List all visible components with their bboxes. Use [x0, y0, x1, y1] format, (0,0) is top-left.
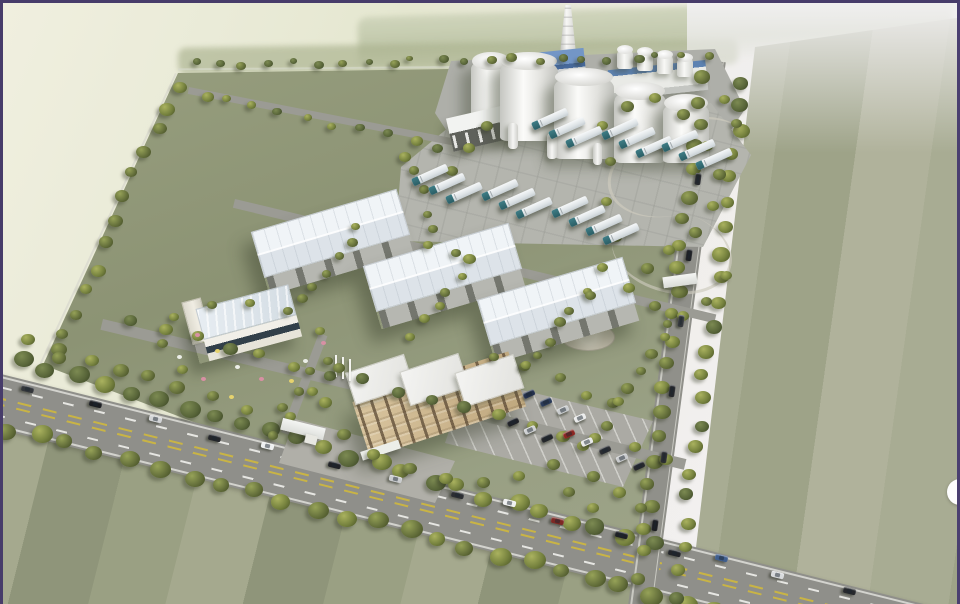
car: [632, 461, 645, 471]
car: [614, 531, 628, 540]
car: [388, 475, 402, 484]
car: [450, 491, 464, 500]
car: [550, 517, 564, 526]
car: [539, 397, 552, 407]
car: [20, 385, 34, 394]
car: [260, 442, 274, 451]
aerial-site-rendering: [0, 0, 960, 604]
car: [660, 451, 668, 464]
car: [327, 461, 341, 470]
car: [562, 429, 575, 439]
car: [148, 415, 162, 424]
car: [685, 249, 693, 262]
car: [651, 519, 659, 532]
car: [556, 405, 569, 415]
car: [770, 571, 784, 580]
car: [522, 389, 535, 399]
car: [668, 385, 676, 398]
car: [506, 417, 519, 427]
car: [580, 437, 593, 447]
car: [88, 400, 102, 409]
car: [523, 425, 536, 435]
car: [694, 173, 702, 186]
car: [615, 453, 628, 463]
car: [598, 445, 611, 455]
car: [677, 315, 685, 328]
car: [502, 499, 516, 508]
vehicles-layer: [3, 3, 960, 604]
car: [573, 413, 586, 423]
car: [540, 433, 553, 443]
car: [667, 549, 681, 558]
car: [207, 434, 221, 443]
car: [714, 554, 728, 563]
car: [842, 587, 856, 596]
